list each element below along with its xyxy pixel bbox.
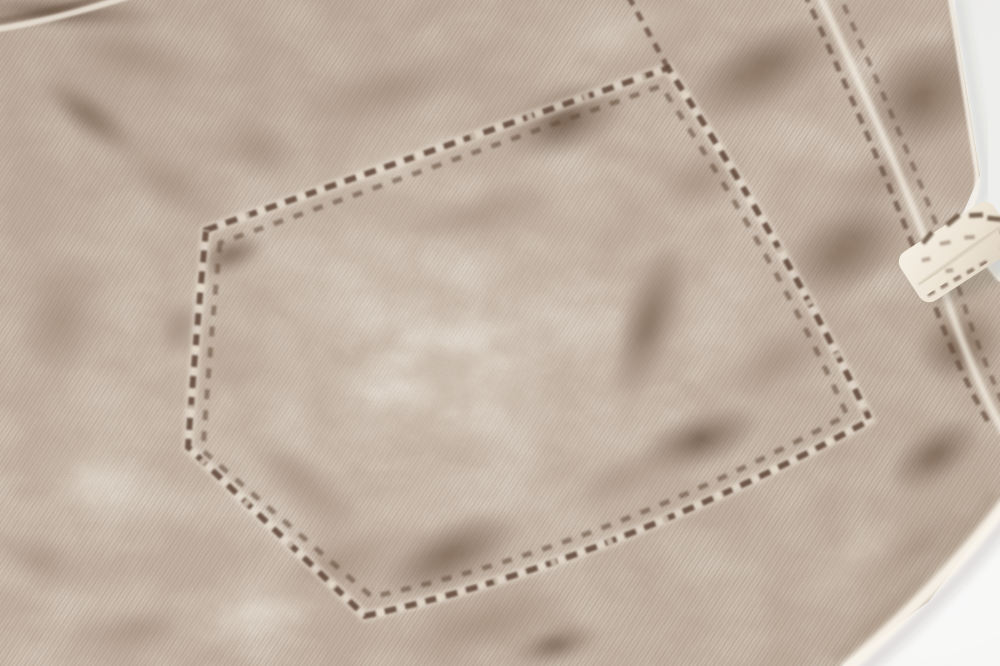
seams-and-details-layer	[0, 0, 1000, 666]
photo-canvas	[0, 0, 1000, 666]
